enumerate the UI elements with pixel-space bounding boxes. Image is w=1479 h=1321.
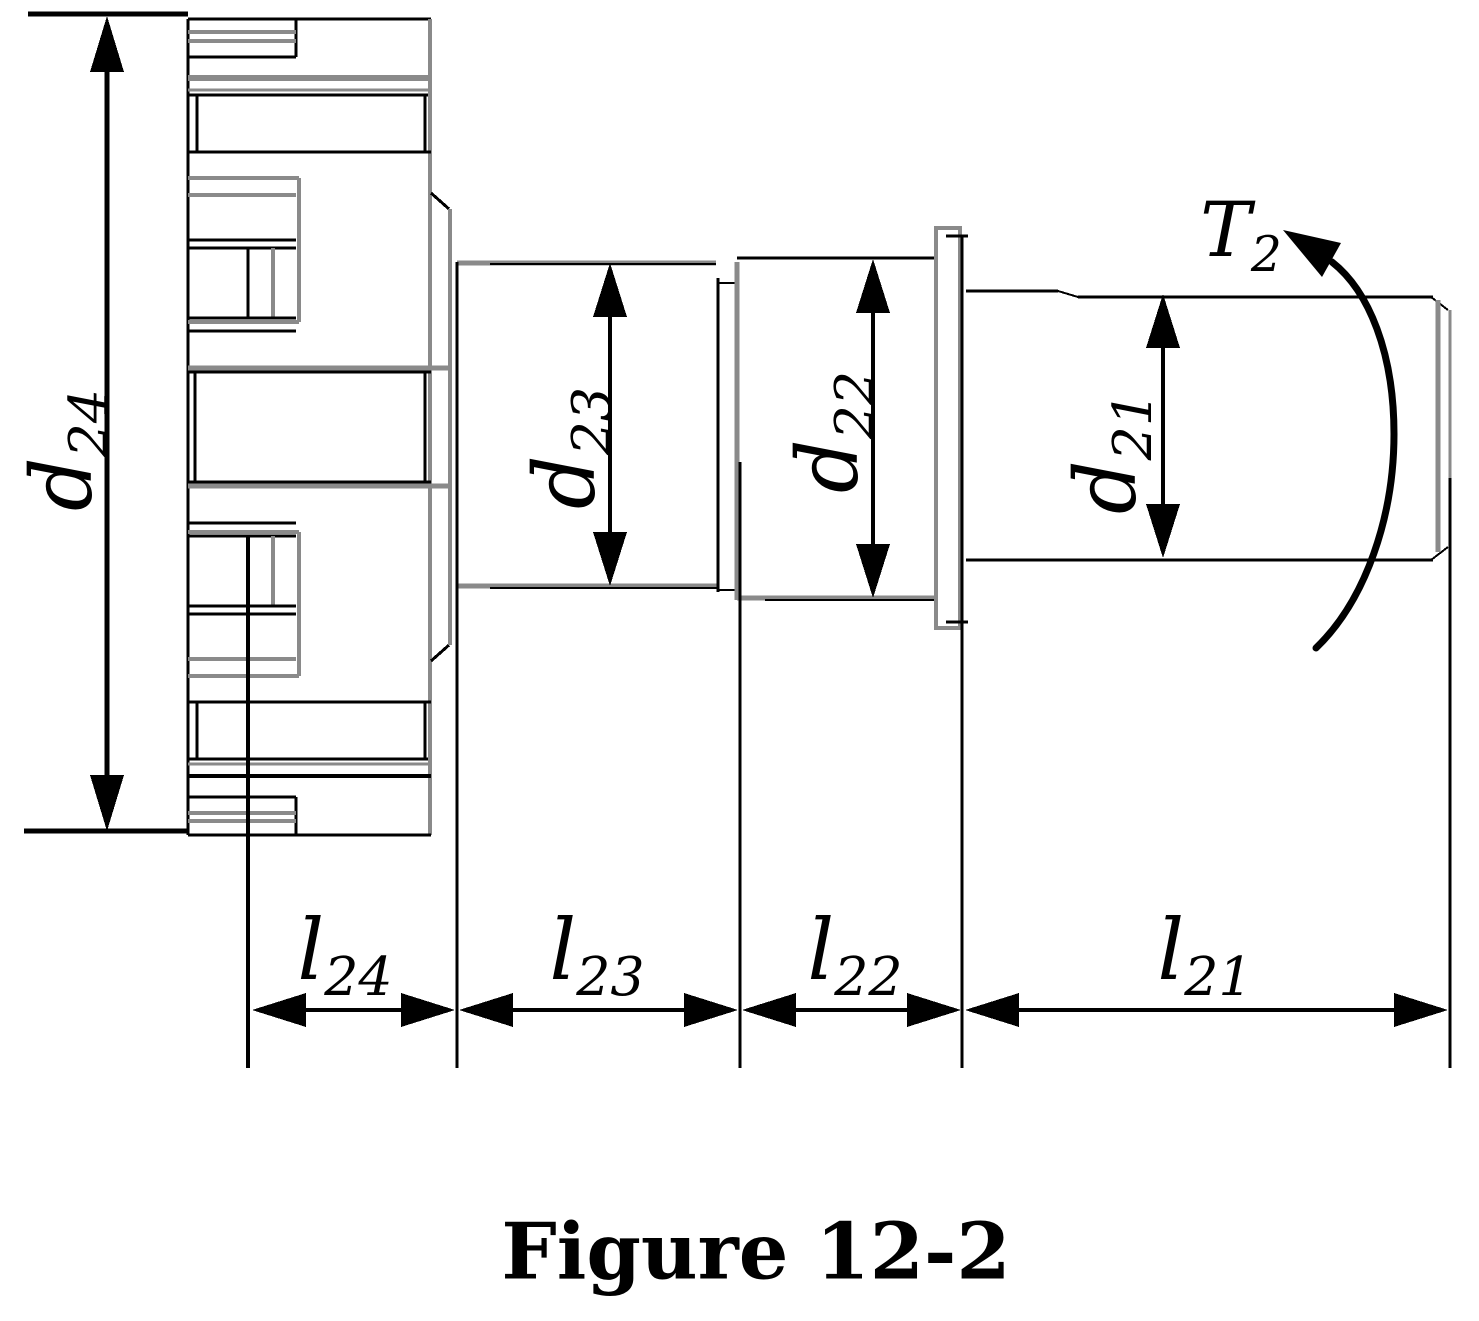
arrowhead-right-icon	[684, 993, 738, 1027]
arrowhead-up-icon	[856, 259, 890, 313]
label-l24: l24	[297, 908, 392, 992]
label-d22: d22	[786, 371, 870, 493]
arrowhead-up-left-icon	[1283, 230, 1341, 277]
label-l23: l23	[549, 908, 644, 992]
arrowhead-up-icon	[593, 263, 627, 317]
label-l21: l21	[1157, 908, 1252, 992]
figure-caption: Figure 12-2	[501, 1207, 1010, 1298]
arrowhead-up-icon	[1146, 294, 1180, 348]
label-d23: d23	[523, 387, 607, 509]
label-d24-base: d	[13, 457, 111, 511]
label-l21-base: l	[1157, 901, 1184, 999]
arrowhead-down-icon	[593, 532, 627, 586]
label-l23-base: l	[549, 901, 576, 999]
label-d21: d21	[1064, 392, 1148, 514]
arrowhead-down-icon	[90, 775, 124, 831]
label-d23-sub: 23	[560, 387, 623, 455]
arrowhead-left-icon	[742, 993, 796, 1027]
label-l21-sub: 21	[1184, 945, 1252, 1008]
label-torque-sub: 2	[1251, 227, 1282, 283]
label-d21-sub: 21	[1101, 392, 1164, 460]
gear-hub	[188, 19, 450, 835]
torque-arrow	[1283, 230, 1394, 648]
label-d21-base: d	[1057, 460, 1155, 514]
shaft-shoulder	[431, 193, 450, 661]
arrowhead-up-icon	[90, 16, 124, 72]
arrowhead-left-icon	[459, 993, 513, 1027]
figure-12-2-diagram: d24 d23 d22 d21 l24 l23 l22 l21 T2 Figur…	[0, 0, 1479, 1321]
arrowhead-right-icon	[907, 993, 961, 1027]
arrowhead-right-icon	[1394, 993, 1448, 1027]
arrowhead-down-icon	[856, 544, 890, 598]
label-l22-base: l	[807, 901, 834, 999]
label-l24-base: l	[297, 901, 324, 999]
label-d24: d24	[20, 389, 104, 511]
label-d24-sub: 24	[57, 389, 120, 457]
arrowhead-left-icon	[965, 993, 1019, 1027]
label-l24-sub: 24	[324, 945, 392, 1008]
label-d23-base: d	[516, 455, 614, 509]
label-l22-sub: 22	[834, 945, 902, 1008]
arrowhead-right-icon	[401, 993, 455, 1027]
label-torque-t2: T2	[1200, 192, 1282, 268]
label-d22-sub: 22	[823, 371, 886, 439]
label-torque-base: T	[1200, 185, 1251, 274]
label-d22-base: d	[779, 439, 877, 493]
label-l22: l22	[807, 908, 902, 992]
label-l23-sub: 23	[576, 945, 644, 1008]
